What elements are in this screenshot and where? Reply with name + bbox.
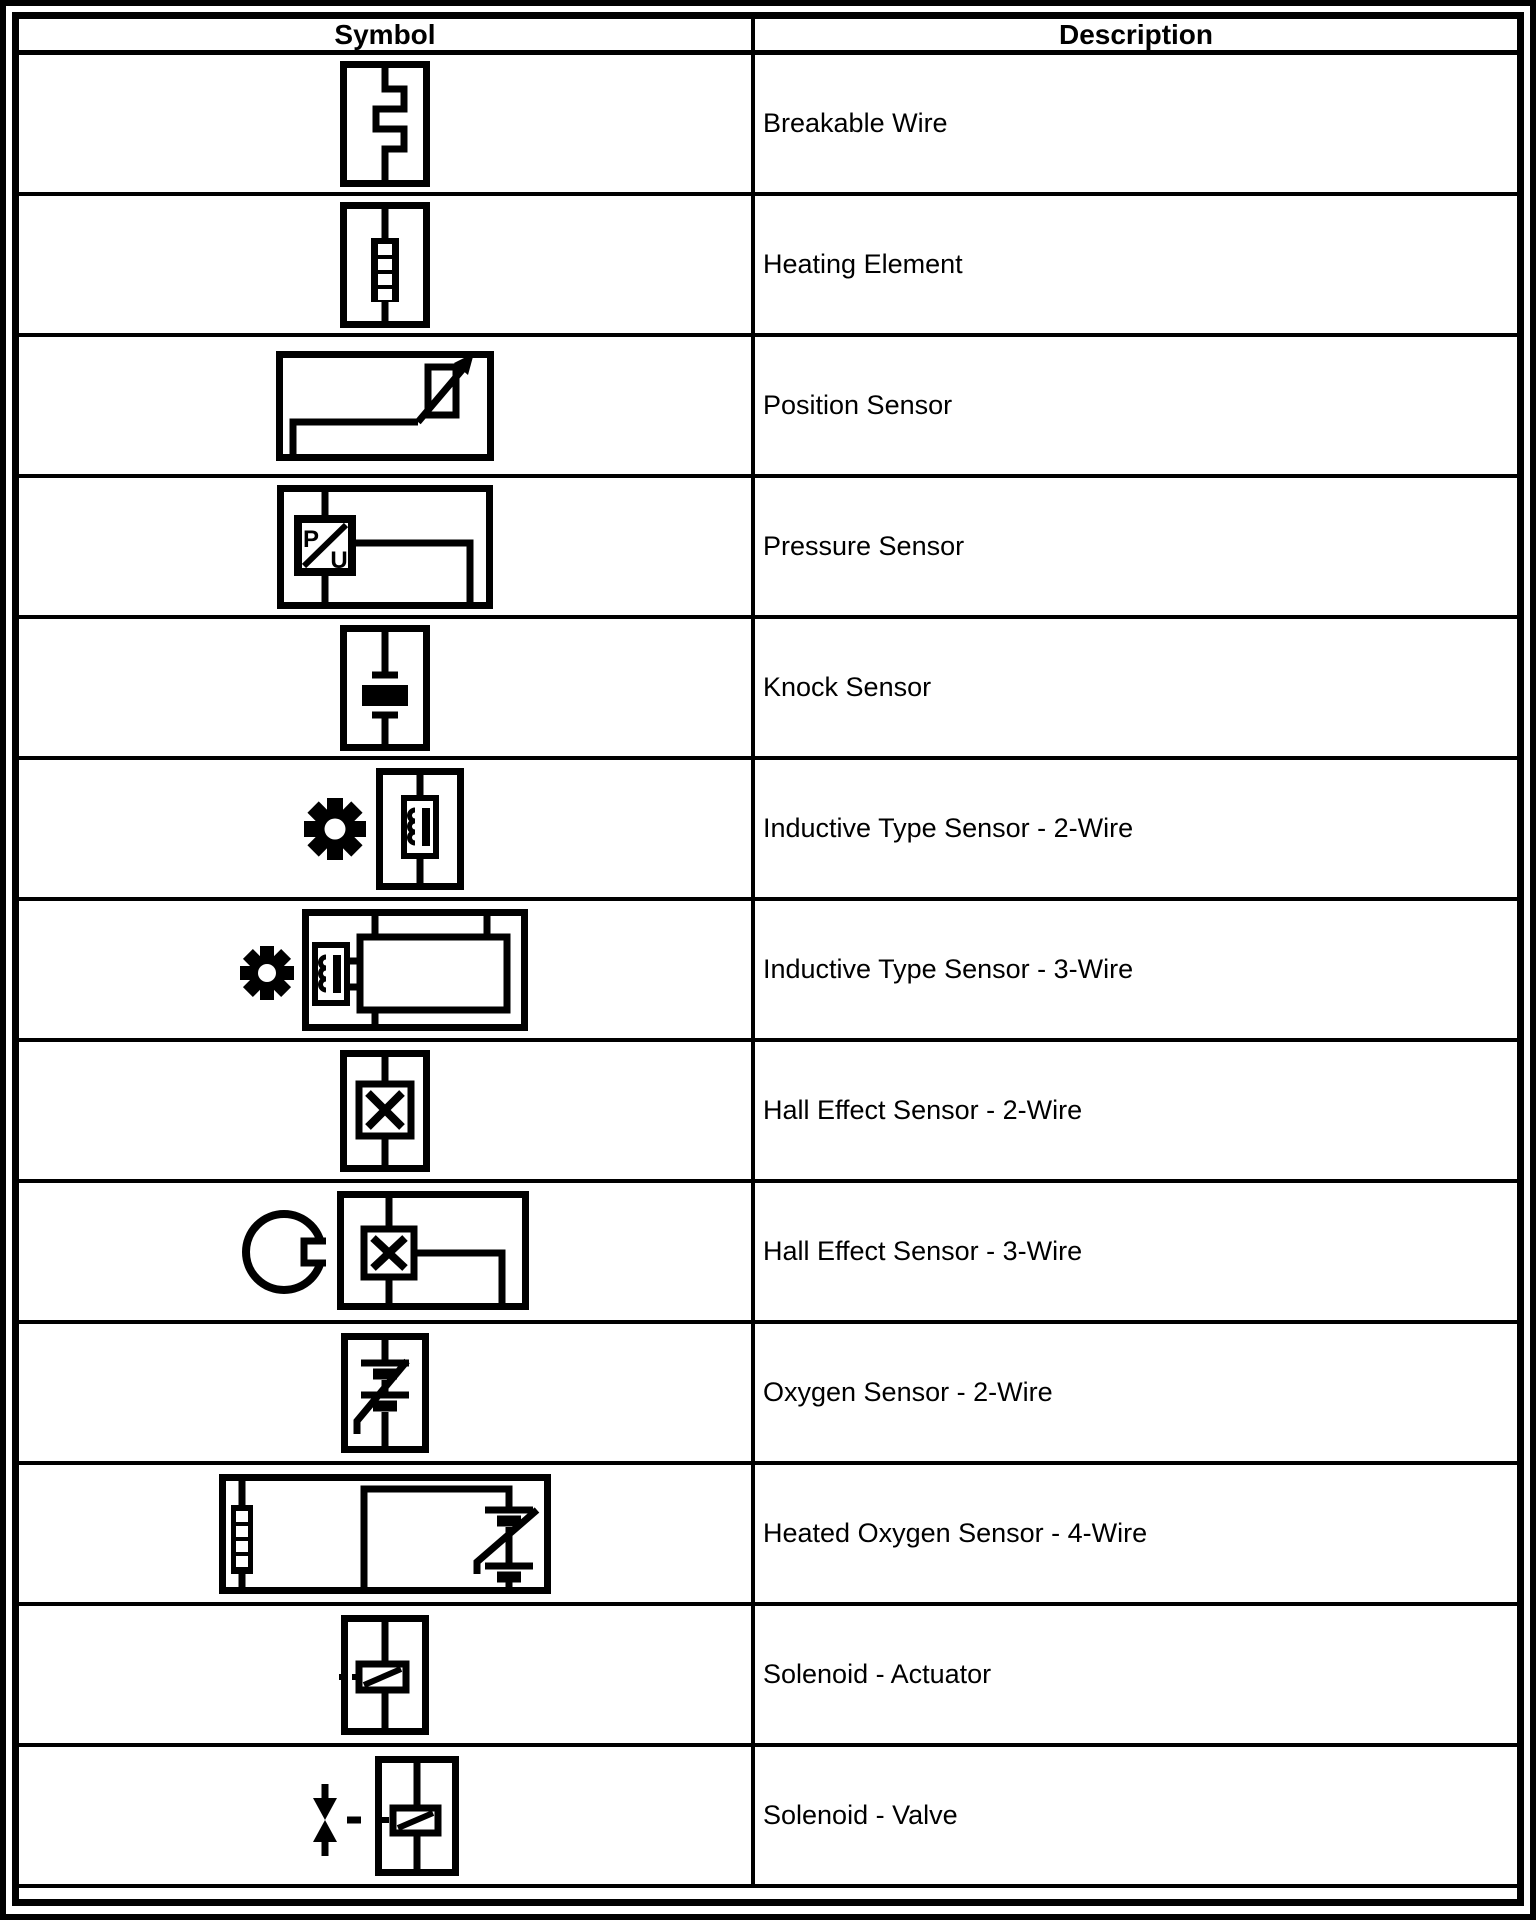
gear-icon: [304, 798, 366, 860]
header-description-label: Description: [1059, 19, 1213, 51]
inductive-3-wire-symbol: [240, 909, 530, 1031]
table-row: Position Sensor: [19, 337, 1517, 478]
heating-element-symbol: [340, 202, 430, 328]
description-cell: Oxygen Sensor - 2-Wire: [755, 1324, 1517, 1461]
description-label: Hall Effect Sensor - 2-Wire: [763, 1095, 1082, 1126]
position-sensor-symbol: [276, 351, 494, 461]
table-header-row: Symbol Description: [19, 19, 1517, 55]
description-label: Heating Element: [763, 249, 963, 280]
symbol-cell: [19, 1747, 755, 1884]
description-label: Solenoid - Actuator: [763, 1659, 991, 1690]
description-cell: Hall Effect Sensor - 2-Wire: [755, 1042, 1517, 1179]
valve-icon: [313, 1784, 337, 1856]
symbol-cell: [19, 1465, 755, 1602]
description-label: Inductive Type Sensor - 3-Wire: [763, 954, 1133, 985]
symbol-cell: [19, 1324, 755, 1461]
hall-effect-3-wire-symbol: [240, 1191, 530, 1313]
table-row: Oxygen Sensor - 2-Wire: [19, 1324, 1517, 1465]
knock-sensor-symbol: [340, 625, 430, 751]
description-label: Position Sensor: [763, 390, 952, 421]
pressure-sensor-symbol: P U: [277, 485, 493, 609]
oxygen-sensor-2-wire-symbol: [341, 1333, 429, 1453]
symbol-cell: [19, 337, 755, 474]
description-cell: Solenoid - Valve: [755, 1747, 1517, 1884]
table-bottom-spacer: [19, 1888, 1517, 1899]
solenoid-valve-symbol: [307, 1756, 463, 1876]
symbol-cell: [19, 1606, 755, 1743]
header-symbol-label: Symbol: [334, 19, 435, 51]
description-cell: Hall Effect Sensor - 3-Wire: [755, 1183, 1517, 1320]
description-label: Knock Sensor: [763, 672, 931, 703]
inductive-2-wire-symbol: [304, 768, 466, 890]
gear-icon: [240, 946, 294, 1000]
solenoid-actuator-symbol: [341, 1615, 429, 1735]
description-label: Oxygen Sensor - 2-Wire: [763, 1377, 1053, 1408]
hall-effect-2-wire-symbol: [340, 1050, 430, 1172]
description-cell: Heating Element: [755, 196, 1517, 333]
pressure-u-label: U: [330, 547, 347, 574]
header-symbol-cell: Symbol: [19, 19, 755, 50]
description-cell: Inductive Type Sensor - 3-Wire: [755, 901, 1517, 1038]
table-row: Hall Effect Sensor - 2-Wire: [19, 1042, 1517, 1183]
description-label: Inductive Type Sensor - 2-Wire: [763, 813, 1133, 844]
symbol-cell: [19, 55, 755, 192]
description-cell: Inductive Type Sensor - 2-Wire: [755, 760, 1517, 897]
table-row: Inductive Type Sensor - 2-Wire: [19, 760, 1517, 901]
table-row: Heating Element: [19, 196, 1517, 337]
breakable-wire-symbol: [340, 61, 430, 187]
symbol-cell: [19, 760, 755, 897]
description-label: Breakable Wire: [763, 108, 948, 139]
description-label: Heated Oxygen Sensor - 4-Wire: [763, 1518, 1147, 1549]
table-row: Breakable Wire: [19, 55, 1517, 196]
pressure-p-label: P: [303, 526, 319, 553]
description-cell: Pressure Sensor: [755, 478, 1517, 615]
header-description-cell: Description: [755, 19, 1517, 50]
description-label: Pressure Sensor: [763, 531, 964, 562]
table-row: Solenoid - Actuator: [19, 1606, 1517, 1747]
table-row: Heated Oxygen Sensor - 4-Wire: [19, 1465, 1517, 1606]
symbol-cell: P U: [19, 478, 755, 615]
symbol-cell: [19, 196, 755, 333]
description-cell: Knock Sensor: [755, 619, 1517, 756]
table-row: P U Pressure Sensor: [19, 478, 1517, 619]
table-row: Knock Sensor: [19, 619, 1517, 760]
table-row: Hall Effect Sensor - 3-Wire: [19, 1183, 1517, 1324]
symbol-cell: [19, 1183, 755, 1320]
description-cell: Position Sensor: [755, 337, 1517, 474]
table-row: Inductive Type Sensor - 3-Wire: [19, 901, 1517, 1042]
description-cell: Solenoid - Actuator: [755, 1606, 1517, 1743]
heated-oxygen-sensor-4-wire-symbol: [219, 1474, 551, 1594]
description-cell: Heated Oxygen Sensor - 4-Wire: [755, 1465, 1517, 1602]
symbol-cell: [19, 1042, 755, 1179]
symbol-cell: [19, 619, 755, 756]
description-label: Solenoid - Valve: [763, 1800, 958, 1831]
table-row: Solenoid - Valve: [19, 1747, 1517, 1888]
description-label: Hall Effect Sensor - 3-Wire: [763, 1236, 1082, 1267]
symbols-table: Symbol Description Breakable Wire: [12, 12, 1524, 1906]
symbol-cell: [19, 901, 755, 1038]
description-cell: Breakable Wire: [755, 55, 1517, 192]
